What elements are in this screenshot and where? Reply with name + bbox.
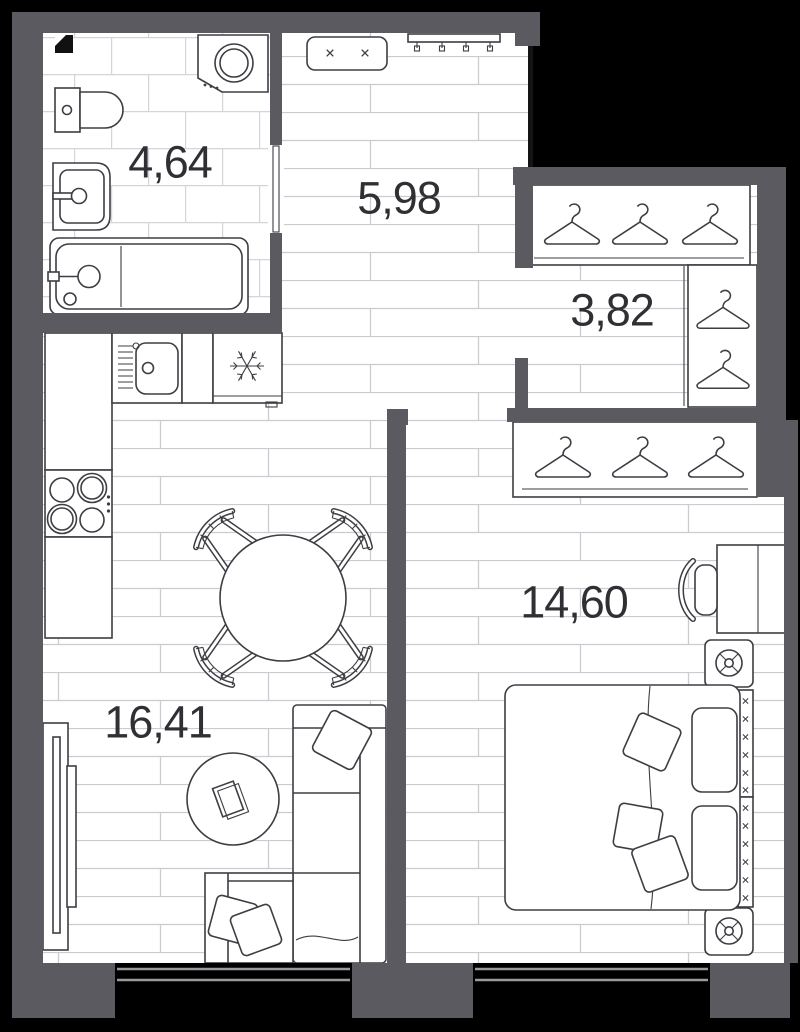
area-label-bathroom: 4,64 xyxy=(128,140,212,185)
lamp-icon xyxy=(716,918,742,944)
kitchen-counter-tall xyxy=(45,333,112,470)
washing-machine xyxy=(198,35,268,92)
kitchen-counter-low xyxy=(45,537,112,638)
area-label-hallway: 5,98 xyxy=(357,176,441,221)
area-label-dressing-room: 3,82 xyxy=(570,288,654,333)
wall-left xyxy=(12,12,43,1018)
bed-pillow xyxy=(692,708,737,792)
wall-bottom-middle xyxy=(352,963,473,1018)
toilet xyxy=(55,88,123,132)
wall-bottom-left xyxy=(12,963,115,1018)
wardrobe-top xyxy=(528,185,750,265)
wall-top xyxy=(12,12,540,33)
wardrobe-side xyxy=(684,265,757,407)
wall-dressing-top xyxy=(513,167,786,185)
wall-dressing-left-lower xyxy=(515,358,528,408)
wall-entrance-jamb xyxy=(515,12,540,46)
dining-table xyxy=(220,535,346,661)
entrance-door xyxy=(528,46,533,167)
bedroom-window xyxy=(473,963,710,1032)
lamp-icon xyxy=(716,650,742,676)
living-room-window xyxy=(115,963,352,1032)
wall-partition xyxy=(387,409,406,963)
vent-shaft-icon xyxy=(55,35,73,53)
area-label-living-kitchen: 16,41 xyxy=(104,700,212,745)
wall-bathroom-right-upper xyxy=(270,33,282,145)
wall-bathroom-bottom xyxy=(43,313,282,333)
floor-plan-graphic xyxy=(0,0,800,1032)
bathtub xyxy=(48,238,248,315)
wall-right-upper xyxy=(757,167,786,497)
wall-right-lower xyxy=(784,420,798,963)
desk xyxy=(717,545,785,633)
bed xyxy=(505,685,740,910)
bathroom-sink xyxy=(53,163,110,230)
wall-bottom-right xyxy=(710,963,790,1018)
bathroom-door xyxy=(268,145,284,233)
shoe-cabinet xyxy=(307,37,387,70)
kitchen-counter-small xyxy=(182,333,213,403)
floor-plan: 4,64 5,98 3,82 14,60 16,41 xyxy=(0,0,800,1032)
fridge xyxy=(213,333,282,407)
wall-dressing-bottom xyxy=(507,408,786,422)
bed-pillow xyxy=(692,806,737,890)
nightstand xyxy=(705,640,753,687)
bedroom-wardrobe xyxy=(513,422,757,497)
area-label-bedroom: 14,60 xyxy=(520,580,628,625)
nightstand xyxy=(705,908,753,955)
rug xyxy=(187,753,279,845)
